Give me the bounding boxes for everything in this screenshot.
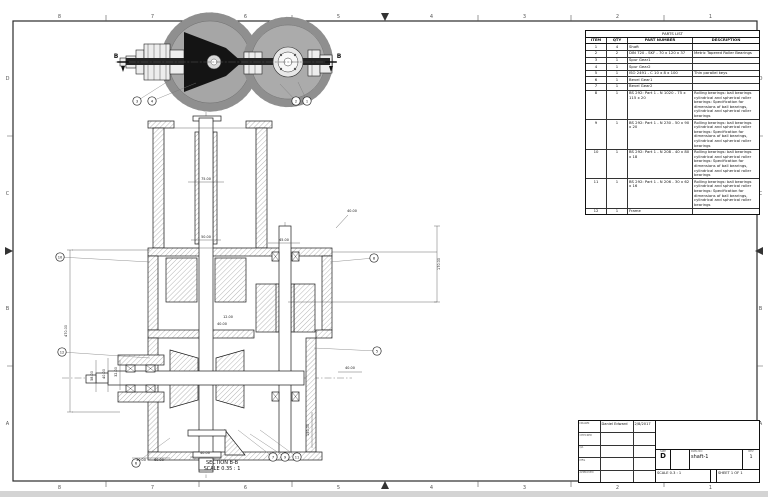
- zone-label: B: [6, 306, 10, 312]
- section-label-b-right: B: [337, 53, 342, 60]
- balloon-num: 5: [376, 349, 378, 353]
- parts-list-header: ITEM QTY PART NUMBER DESCRIPTION: [586, 38, 759, 45]
- parts-list-title: PARTS LIST: [586, 31, 759, 38]
- parts-list-row: 121Frame: [586, 209, 759, 215]
- zone-label: B: [759, 306, 763, 312]
- parts-list-body: 14Shaft22DIN 720 - SKF - 70 x 120 x 37Me…: [586, 44, 759, 214]
- zone-label: 4: [430, 14, 433, 20]
- balloon-num: 3: [136, 99, 138, 103]
- zone-label: 1: [709, 14, 712, 20]
- parts-list-row: 14Shaft: [586, 44, 759, 51]
- dim: 60.00: [154, 458, 164, 462]
- parts-list-row: 101BS 292: Part 1 - N 208 - 40 x 80 x 18…: [586, 150, 759, 180]
- sheet-size: D: [656, 454, 670, 458]
- title-area: [656, 421, 759, 450]
- dwg-no: shaft-1: [691, 455, 742, 459]
- balloon-num: 11: [295, 455, 300, 459]
- dimension-labels: 75.0050.0012.0040.0040.0045.00170.00470.…: [64, 177, 441, 462]
- section-view: SECTION B-B SCALE 0.35 : 1: [62, 112, 440, 478]
- parts-list-row: 61Bevel Gear1: [586, 77, 759, 84]
- top-view: B B: [114, 17, 342, 107]
- cage-code-cell: [671, 450, 690, 469]
- title-block-signoff: DRAWN Daniel Edward 2/8/2017 CHECKED QA …: [579, 421, 656, 482]
- zone-label: 5: [337, 14, 340, 20]
- dim: 170.00: [437, 258, 441, 270]
- section-label-b-left: B: [114, 53, 119, 60]
- zone-label: 3: [523, 14, 526, 20]
- title-block: DRAWN Daniel Edward 2/8/2017 CHECKED QA …: [578, 420, 760, 483]
- dim: 32.00: [114, 367, 118, 377]
- dim: 75.00: [201, 177, 211, 181]
- col-part-number: PART NUMBER: [628, 38, 693, 44]
- parts-list-row: 41Spur Gear2: [586, 64, 759, 71]
- col-qty: QTY: [607, 38, 628, 44]
- parts-list-row: 51ISO 2491 - C 10 x 8 x 100Thin parallel…: [586, 71, 759, 78]
- dim: 40.00: [217, 322, 227, 326]
- balloon-num: 12: [60, 350, 65, 354]
- zone-label: 8: [58, 14, 61, 20]
- drawn-name: Daniel Edward: [601, 421, 634, 432]
- window-edge-strip: [0, 491, 768, 497]
- balloon-num: 7: [272, 455, 274, 459]
- parts-list-row: 71Bevel Gear2: [586, 84, 759, 91]
- size-cell: SIZE D: [656, 450, 671, 469]
- sheet-cell: SHEET 1 OF 1: [717, 470, 759, 482]
- dim: 50.00: [201, 235, 211, 239]
- dim: 40.00: [347, 209, 357, 213]
- zone-label: 6: [244, 14, 247, 20]
- signoff-row-approved: APPROVED: [579, 471, 655, 482]
- zone-label: 2: [616, 14, 619, 20]
- dim: 40.00: [200, 451, 210, 455]
- dim: 40.00: [345, 366, 355, 370]
- parts-list-row: 31Spur Gear1: [586, 58, 759, 65]
- dim: 470.00: [64, 325, 68, 337]
- dim: 12.00: [223, 315, 233, 319]
- dim: 58.00: [90, 371, 94, 381]
- balloon-num: 10: [58, 255, 63, 259]
- title-block-main: SIZE D DWG NO shaft-1 REV 1 SCALE 0.3 : …: [656, 421, 759, 482]
- zone-label: D: [6, 76, 10, 82]
- rev-cell: REV 1: [743, 450, 759, 469]
- signoff-row-qa: QA: [579, 446, 655, 458]
- col-item: ITEM: [586, 38, 607, 44]
- balloon-num: 1: [306, 99, 308, 103]
- col-description: DESCRIPTION: [693, 38, 759, 44]
- zone-label: C: [6, 191, 10, 197]
- parts-list-row: 22DIN 720 - SKF - 70 x 120 x 37Metric Ta…: [586, 51, 759, 58]
- dim: 45.00: [279, 238, 289, 242]
- parts-list: PARTS LIST ITEM QTY PART NUMBER DESCRIPT…: [585, 30, 760, 215]
- zone-label: A: [6, 421, 10, 427]
- drawn-date: 2/8/2017: [634, 421, 655, 432]
- parts-list-row: 91BS 292: Part 1 - N 230 - 50 x 90 x 20R…: [586, 120, 759, 150]
- dwg-no-cell: DWG NO shaft-1: [690, 450, 743, 469]
- balloon-num: 2: [295, 99, 297, 103]
- dim: 30.00: [136, 458, 146, 462]
- parts-list-row: 111BS 292: Part 1 - N 206 - 30 x 62 x 16…: [586, 179, 759, 209]
- signoff-row-mfg: MFG: [579, 458, 655, 470]
- drawing-sheet: B B: [0, 0, 768, 497]
- signoff-row-checked: CHECKED: [579, 433, 655, 445]
- scale-cell: SCALE 0.3 : 1: [656, 470, 711, 482]
- zone-label: 7: [151, 14, 154, 20]
- dim: 40.00: [102, 369, 106, 379]
- parts-list-row: 81BS 292: Part 1 - N 1020 - 75 x 115 x 2…: [586, 91, 759, 121]
- signoff-row-drawn: DRAWN Daniel Edward 2/8/2017: [579, 421, 655, 433]
- rev-value: 1: [743, 456, 759, 460]
- section-view-scale: SCALE 0.35 : 1: [204, 466, 241, 472]
- dim: 150.00: [306, 424, 310, 436]
